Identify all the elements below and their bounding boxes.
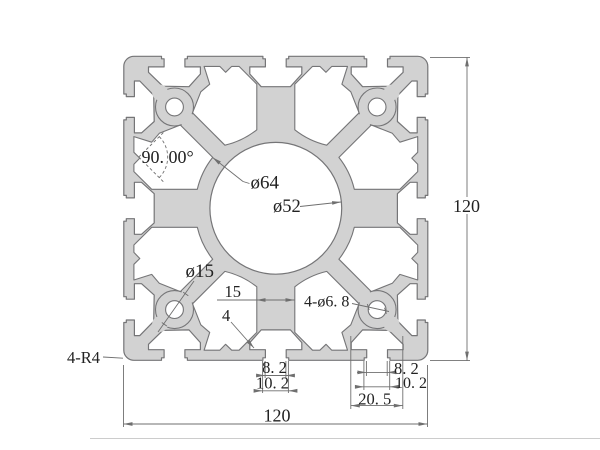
svg-text:20. 5: 20. 5 (358, 390, 391, 409)
svg-text:4: 4 (222, 306, 230, 325)
svg-text:ø52: ø52 (273, 197, 301, 217)
svg-text:120: 120 (453, 196, 480, 216)
svg-text:4-ø6. 8: 4-ø6. 8 (304, 294, 349, 311)
svg-text:120: 120 (264, 406, 291, 426)
svg-text:10. 2: 10. 2 (395, 375, 427, 392)
svg-text:4-R4: 4-R4 (67, 348, 100, 367)
svg-text:ø64: ø64 (251, 173, 280, 194)
svg-text:90. 00°: 90. 00° (142, 147, 194, 167)
svg-text:15: 15 (225, 282, 242, 301)
svg-text:10. 2: 10. 2 (256, 373, 289, 392)
svg-text:ø15: ø15 (186, 261, 215, 282)
